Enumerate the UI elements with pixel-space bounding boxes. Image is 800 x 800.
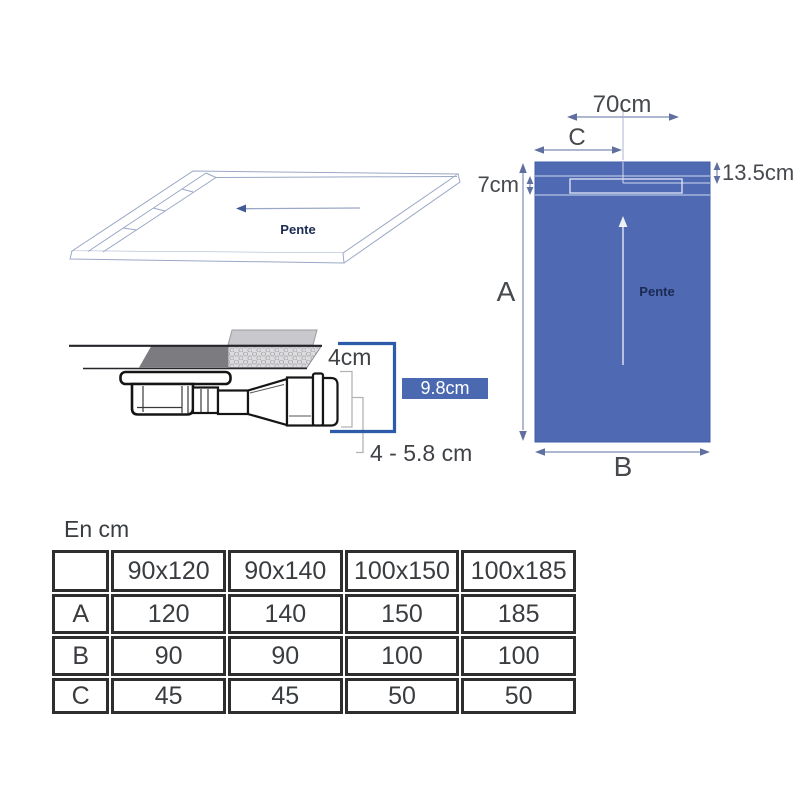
arrow-right-icon xyxy=(700,448,710,456)
shower-tray-spec-sheet: Pente Pente 70cm xyxy=(0,0,800,800)
honeycomb-panel xyxy=(228,347,321,368)
table-col-header: 90x140 xyxy=(228,550,343,592)
iso-pente-label: Pente xyxy=(280,222,315,237)
table-col-header: 100x150 xyxy=(345,550,460,592)
arrow-left-icon xyxy=(535,448,545,456)
dim-9-8cm-label: 9.8cm xyxy=(420,378,469,398)
siphon-cylinder xyxy=(287,378,313,426)
table-col-header: 90x120 xyxy=(111,550,226,592)
arrow-right-icon xyxy=(669,113,679,121)
arrow-down-icon xyxy=(714,176,721,184)
table-cell: 140 xyxy=(228,594,343,634)
arrow-up-icon xyxy=(519,163,527,173)
table-col-header: 100x185 xyxy=(461,550,576,592)
table-cell: 90 xyxy=(111,636,226,676)
table-cell: 45 xyxy=(111,678,226,714)
top-view-pente-label: Pente xyxy=(639,284,674,299)
table-cell: 100 xyxy=(345,636,460,676)
dim-a-label: A xyxy=(497,276,516,307)
dim-7cm-label: 7cm xyxy=(477,172,519,197)
dim-4cm-label: 4cm xyxy=(328,344,371,370)
table-row-label: A xyxy=(52,594,109,634)
arrow-left-icon xyxy=(534,146,544,154)
drain-body xyxy=(132,384,193,415)
dim-7cm: 7cm xyxy=(477,172,533,197)
table-row-c: C 45 45 50 50 xyxy=(52,678,576,714)
siphon-ring xyxy=(313,374,323,426)
section-view: 4cm 9.8cm 4 - 5.8 cm xyxy=(69,330,488,466)
table-unit-label: En cm xyxy=(64,516,129,543)
table-cell: 90 xyxy=(228,636,343,676)
table-cell: 50 xyxy=(345,678,460,714)
table-cell: 120 xyxy=(111,594,226,634)
siphon-end-cap xyxy=(323,378,338,426)
siphon-pipe xyxy=(218,391,248,415)
dim-4-5-8cm-label: 4 - 5.8 cm xyxy=(370,440,472,466)
table-row-label: C xyxy=(52,678,109,714)
dim-13-5cm-label: 13.5cm xyxy=(722,160,794,185)
arrow-left-icon xyxy=(567,113,577,121)
arrow-up-icon xyxy=(714,162,721,170)
arrow-up-icon xyxy=(527,176,534,184)
table-row-b: B 90 90 100 100 xyxy=(52,636,576,676)
screed-slab xyxy=(228,330,317,345)
table-cell: 50 xyxy=(461,678,576,714)
top-view: Pente 70cm C A xyxy=(477,91,794,482)
dimensions-table-wrapper: 90x120 90x140 100x150 100x185 A 120 140 … xyxy=(50,548,578,716)
iso-tray-top-face xyxy=(72,171,458,253)
siphon-neck xyxy=(193,388,218,414)
table-header-row: 90x120 90x140 100x150 100x185 xyxy=(52,550,576,592)
dimensions-table: 90x120 90x140 100x150 100x185 A 120 140 … xyxy=(50,548,578,716)
table-cell: 100 xyxy=(461,636,576,676)
dim-b: B xyxy=(535,448,710,482)
table-cell: 45 xyxy=(228,678,343,714)
arrow-right-icon xyxy=(612,146,622,154)
grate-cover xyxy=(139,347,228,368)
dim-c-label: C xyxy=(568,124,585,151)
siphon-drawing xyxy=(121,372,338,426)
siphon-cone xyxy=(248,379,287,425)
table-row-label: B xyxy=(52,636,109,676)
dim-13-5cm: 13.5cm xyxy=(714,160,795,185)
dim-70cm-label: 70cm xyxy=(593,91,652,118)
drain-flange xyxy=(121,372,231,384)
measure-brackets-gray xyxy=(340,372,363,453)
table-row-a: A 120 140 150 185 xyxy=(52,594,576,634)
arrow-down-icon xyxy=(527,187,534,195)
dim-a: A xyxy=(497,163,527,441)
arrow-down-icon xyxy=(519,431,527,441)
table-cell: 185 xyxy=(461,594,576,634)
dim-c: C xyxy=(534,124,622,154)
dim-b-label: B xyxy=(614,451,633,482)
table-corner-cell xyxy=(52,550,109,592)
iso-tray-view: Pente xyxy=(70,171,460,263)
table-cell: 150 xyxy=(345,594,460,634)
